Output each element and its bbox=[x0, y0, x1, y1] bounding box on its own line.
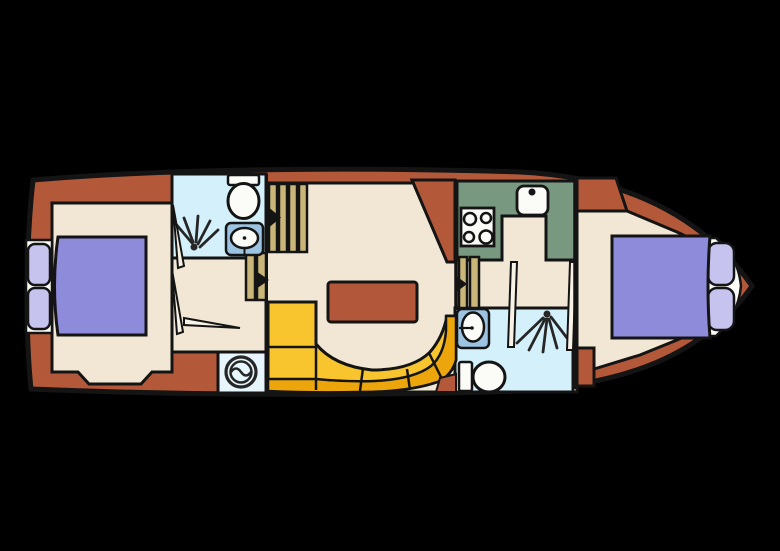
toilet-icon bbox=[473, 362, 505, 392]
boat-floor-plan bbox=[0, 0, 780, 551]
wardrobe bbox=[577, 348, 594, 386]
pillow bbox=[708, 288, 734, 330]
stair-tread bbox=[299, 184, 307, 252]
companionway-stairs-main bbox=[267, 184, 307, 252]
mattress bbox=[55, 237, 147, 335]
stair-tread bbox=[470, 257, 479, 308]
stair-tread bbox=[289, 184, 297, 252]
toilet-icon bbox=[228, 184, 259, 219]
pillow bbox=[708, 243, 734, 285]
dining-table bbox=[328, 282, 417, 322]
steps-fwd bbox=[455, 257, 479, 308]
mattress bbox=[612, 236, 710, 338]
stair-tread bbox=[246, 253, 255, 300]
double-bed-fwd bbox=[612, 236, 741, 338]
double-bed-aft bbox=[26, 237, 146, 335]
kitchen-tap bbox=[529, 189, 536, 196]
pillow bbox=[28, 288, 50, 329]
toilet-tank bbox=[459, 362, 472, 391]
washing-machine-icon bbox=[226, 357, 256, 387]
pillow bbox=[28, 244, 50, 285]
sink-drain bbox=[243, 236, 247, 240]
floor-plan-canvas bbox=[0, 0, 780, 551]
sink-drain bbox=[470, 326, 474, 330]
